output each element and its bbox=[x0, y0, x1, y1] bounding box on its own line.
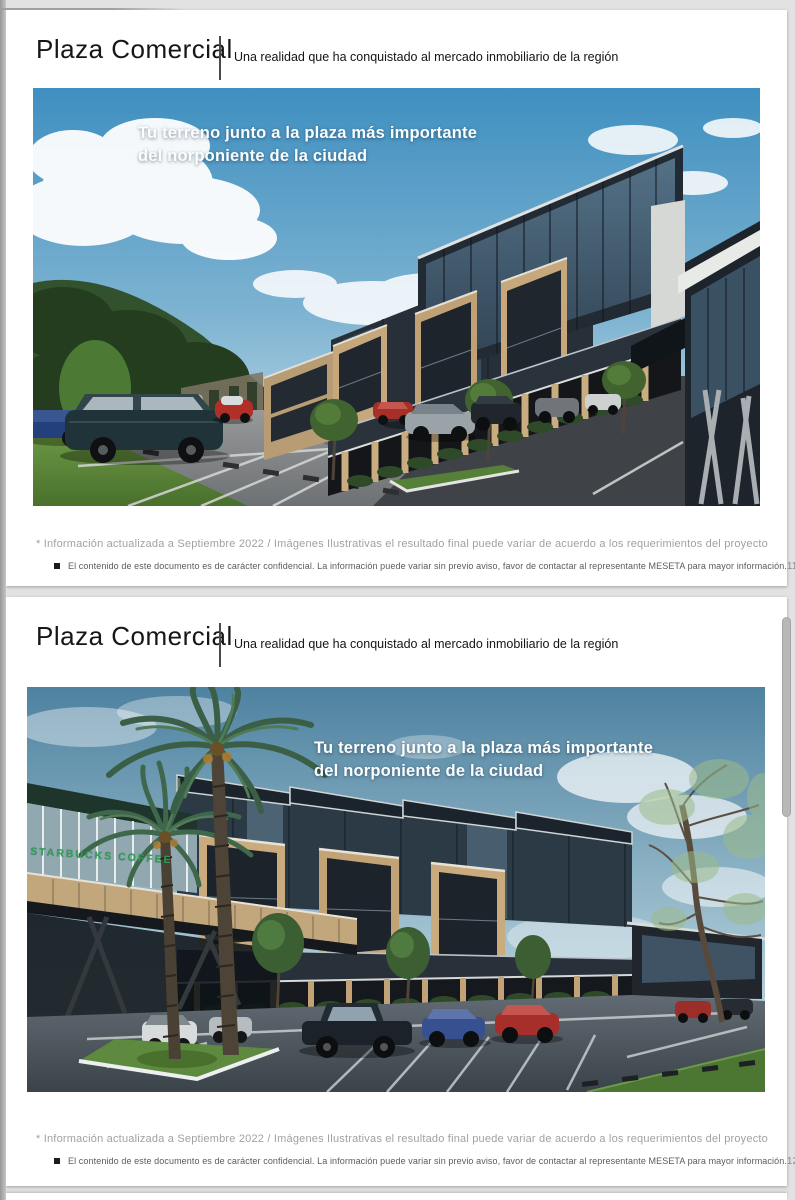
next-slide-edge bbox=[6, 1193, 787, 1200]
footnote-confidential: El contenido de este documento es de car… bbox=[68, 561, 787, 571]
caption-line-1: Tu terreno junto a la plaza más importan… bbox=[138, 122, 477, 145]
render-overlay-caption: Tu terreno junto a la plaza más importan… bbox=[314, 737, 653, 783]
page-number: 12 bbox=[787, 1156, 795, 1167]
render-overlay-caption: Tu terreno junto a la plaza más importan… bbox=[138, 122, 477, 168]
footnote-disclaimer: * Información actualizada a Septiembre 2… bbox=[36, 538, 736, 550]
header-divider bbox=[219, 623, 221, 667]
slide-header: Plaza Comercial Una realidad que ha conq… bbox=[6, 10, 787, 90]
bullet-square-icon bbox=[54, 1158, 60, 1164]
page-subtitle: Una realidad que ha conquistado al merca… bbox=[234, 637, 654, 651]
slide-page-11: Plaza Comercial Una realidad que ha conq… bbox=[6, 10, 787, 586]
document-viewer: { "slides": [ { "header": { "title": "Pl… bbox=[0, 0, 795, 1200]
header-divider bbox=[219, 36, 221, 80]
caption-line-1: Tu terreno junto a la plaza más importan… bbox=[314, 737, 653, 760]
footnote-disclaimer: * Información actualizada a Septiembre 2… bbox=[36, 1133, 736, 1145]
slide-page-12: Plaza Comercial Una realidad que ha conq… bbox=[6, 597, 787, 1186]
footnote-confidential-row: El contenido de este documento es de car… bbox=[54, 1156, 764, 1167]
plaza-render-image-1: Tu terreno junto a la plaza más importan… bbox=[33, 88, 760, 506]
scrollbar-thumb[interactable] bbox=[782, 617, 791, 817]
page-subtitle: Una realidad que ha conquistado al merca… bbox=[234, 50, 654, 64]
page-title: Plaza Comercial bbox=[36, 621, 233, 652]
page-title: Plaza Comercial bbox=[36, 34, 233, 65]
footnote-confidential: El contenido de este documento es de car… bbox=[68, 1156, 787, 1166]
viewer-top-edge-line bbox=[0, 8, 185, 10]
page-number: 11 bbox=[787, 561, 795, 572]
plaza-render-image-2: Tu terreno junto a la plaza más importan… bbox=[27, 687, 765, 1092]
caption-line-2: del norponiente de la ciudad bbox=[314, 760, 653, 783]
bullet-square-icon bbox=[54, 563, 60, 569]
footnote-confidential-row: El contenido de este documento es de car… bbox=[54, 561, 764, 572]
viewer-left-edge-shadow bbox=[0, 0, 6, 1200]
caption-line-2: del norponiente de la ciudad bbox=[138, 145, 477, 168]
slide-header: Plaza Comercial Una realidad que ha conq… bbox=[6, 597, 787, 677]
